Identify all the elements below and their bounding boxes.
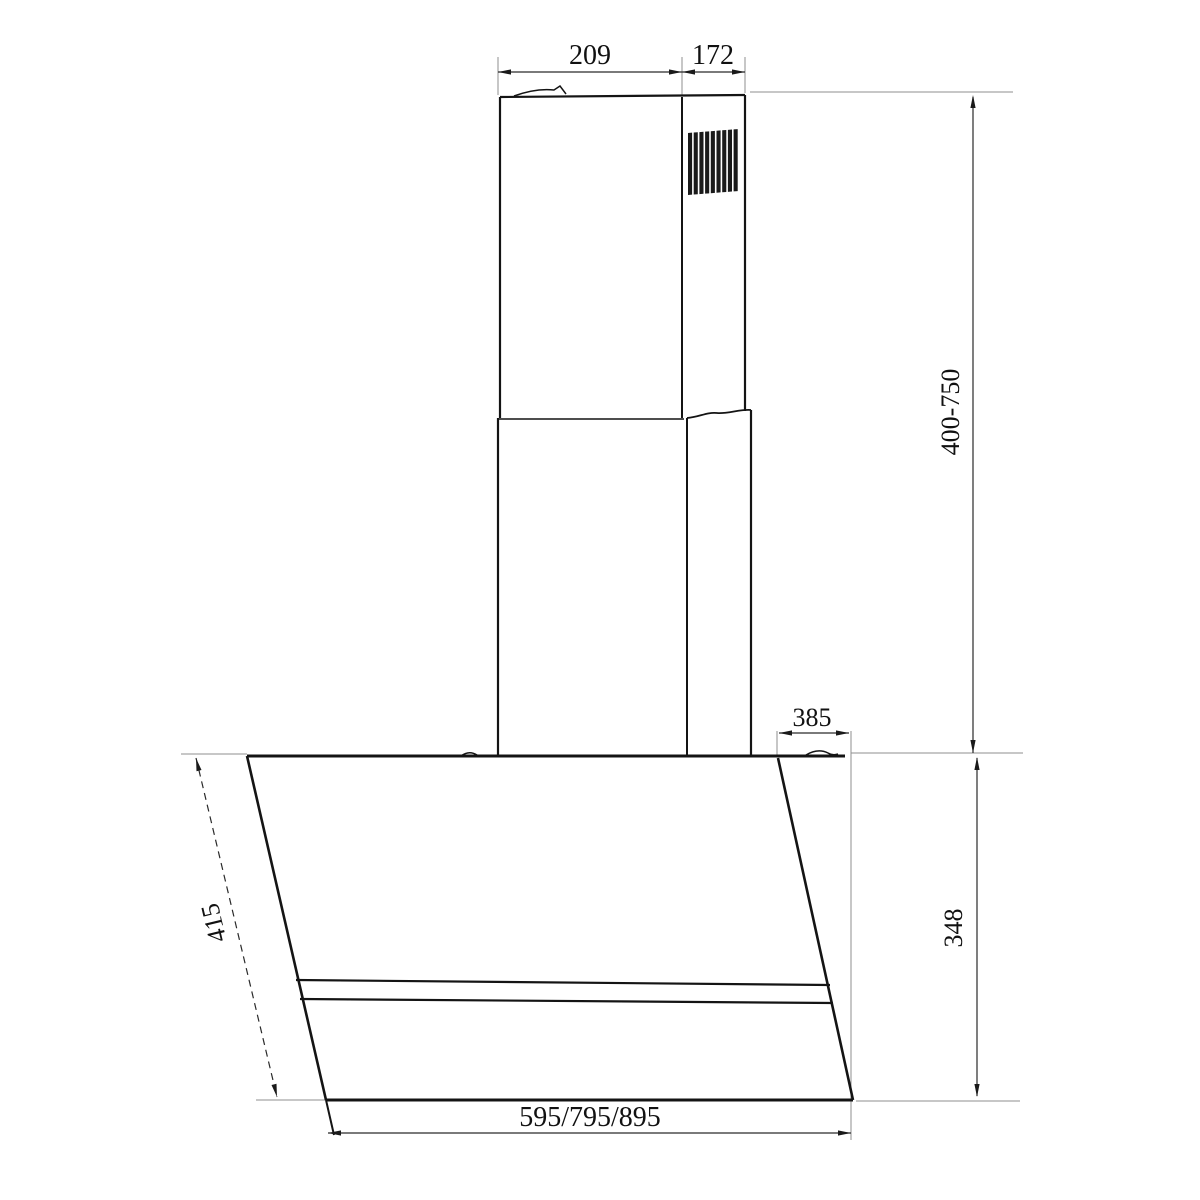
- glass-left-edge: [247, 756, 326, 1100]
- arrowhead: [838, 1130, 851, 1135]
- grille-slat: [728, 130, 732, 192]
- glass-left-edge-extension: [326, 1100, 334, 1135]
- hood-top-overlap-mark-right: [806, 751, 838, 755]
- hood-body: [247, 751, 853, 1135]
- glass-seam-upper: [296, 980, 830, 985]
- glass-seam-lower: [300, 999, 833, 1003]
- vent-grille: [688, 129, 738, 195]
- extension-lines: [181, 57, 1023, 1140]
- grille-slat: [705, 131, 709, 193]
- drawing-page: 209 172 400-750 385 348 415: [0, 0, 1200, 1200]
- dim-text-415: 415: [195, 901, 232, 946]
- arrowhead: [974, 1084, 979, 1097]
- chimney-joint-side: [687, 410, 751, 418]
- dim-text-400-750: 400-750: [936, 369, 965, 456]
- dimension-chimney-height: 400-750: [936, 95, 976, 753]
- grille-slat: [734, 129, 738, 191]
- grille-slat: [711, 131, 715, 193]
- glass-right-edge: [778, 758, 853, 1100]
- dimension-body-height: 348: [939, 757, 980, 1097]
- dimension-available-widths: 595/795/895: [328, 1102, 851, 1136]
- dim-text-209: 209: [569, 40, 611, 71]
- grille-slat: [722, 130, 726, 192]
- dimension-chimney-side-depth: 172: [682, 40, 745, 75]
- dim-text-348: 348: [939, 909, 968, 948]
- arrowhead: [498, 69, 511, 74]
- grille-slat: [699, 132, 703, 194]
- dimension-hood-top-depth: 385: [779, 703, 849, 736]
- dimension-glass-length: 415: [195, 758, 277, 1097]
- dim-text-385: 385: [793, 703, 832, 732]
- cooker-hood-dimension-drawing: 209 172 400-750 385 348 415: [0, 0, 1200, 1200]
- arrowhead: [196, 758, 202, 771]
- dim-text-172: 172: [692, 40, 734, 71]
- dim-text-595-795-895: 595/795/895: [519, 1102, 661, 1133]
- arrowhead: [779, 730, 792, 735]
- grille-slat: [694, 132, 698, 194]
- dimension-chimney-front-width: 209: [498, 40, 682, 75]
- arrowhead: [272, 1084, 278, 1097]
- grille-slat: [688, 133, 692, 195]
- chimney-top-edge: [500, 95, 745, 97]
- arrowhead: [836, 730, 849, 735]
- chimney: [498, 86, 751, 756]
- arrowhead: [974, 757, 979, 770]
- grille-slat: [717, 130, 721, 192]
- chimney-top-overlap-mark: [514, 86, 566, 96]
- arrowhead: [970, 740, 975, 753]
- arrowhead: [970, 95, 975, 108]
- arrowhead: [669, 69, 682, 74]
